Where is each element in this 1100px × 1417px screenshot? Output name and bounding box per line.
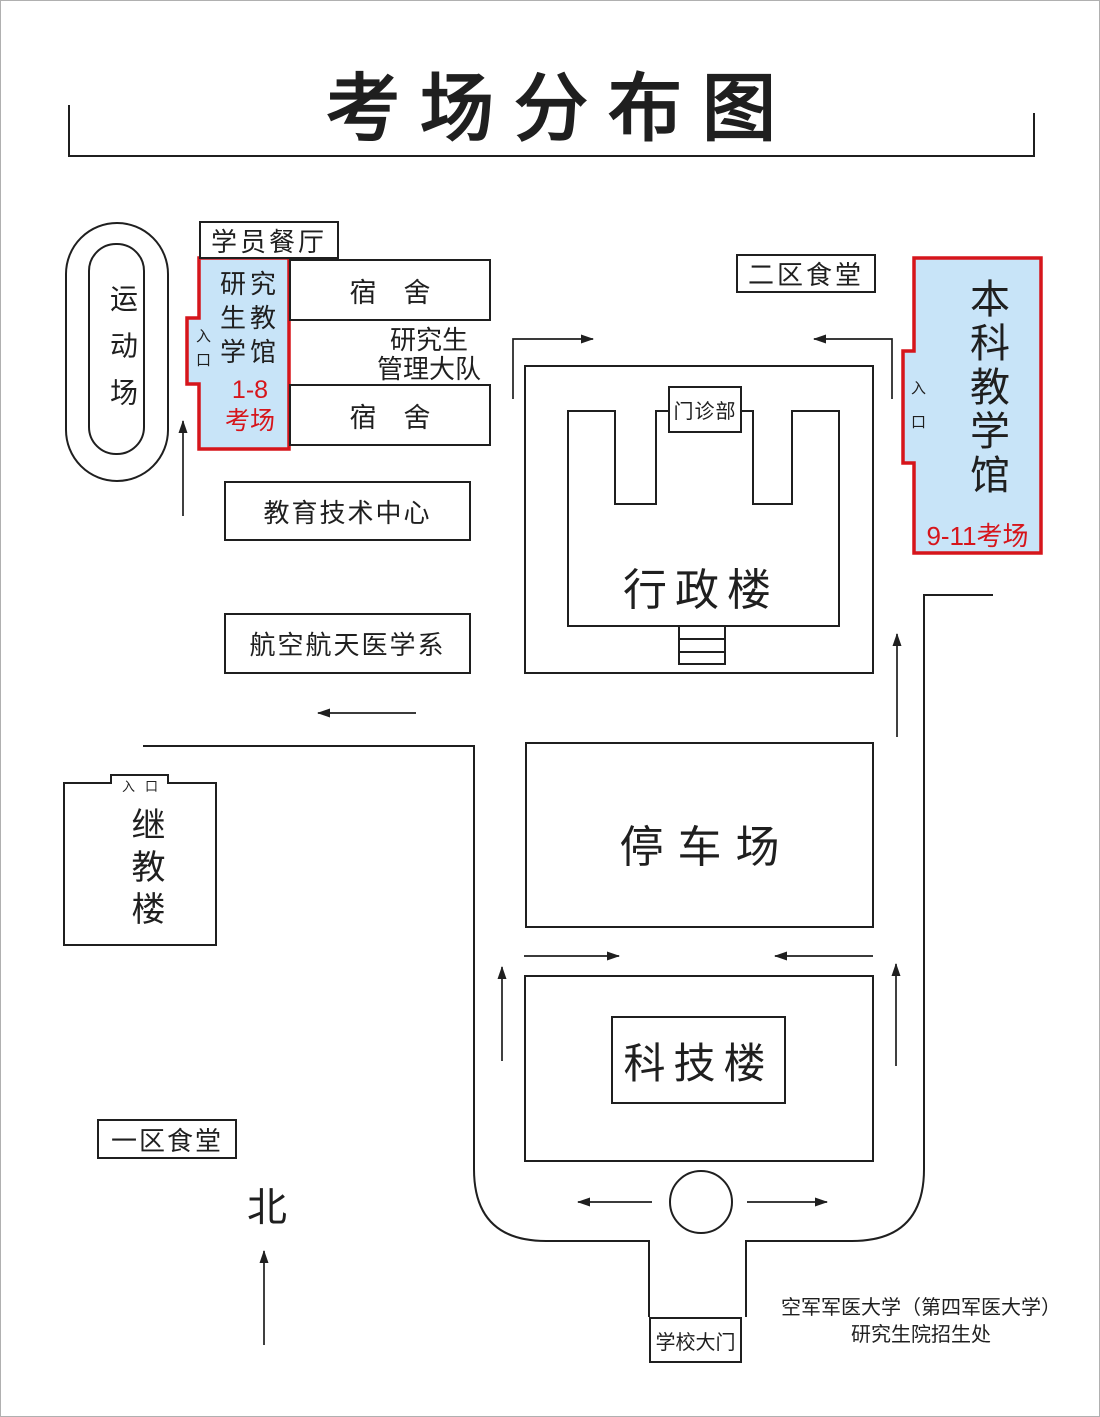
undergrad-entrance-label: 入口 [907, 380, 928, 448]
school-gate-label: 学校大门 [656, 1326, 736, 1355]
building-dorm-upper: 宿 舍 [289, 259, 491, 321]
grad-teaching-hall-label: 研究生教学馆 [212, 267, 288, 369]
undergrad-exam-rooms: 9-11考场 [914, 516, 1041, 553]
map-linework [1, 1, 1100, 1417]
footer-university-name: 空军军医大学（第四军医大学） [766, 1295, 1076, 1322]
grad-management-line2: 管理大队 [329, 355, 529, 384]
dorm-upper-label: 宿 舍 [350, 271, 431, 310]
grad-management-line1: 研究生 [329, 326, 529, 355]
grad-management-label: 研究生 管理大队 [329, 326, 529, 384]
footer-organization: 空军军医大学（第四军医大学） 研究生院招生处 [766, 1295, 1076, 1349]
page-title: 考场分布图 [1, 49, 1100, 156]
building-district2-canteen: 二区食堂 [736, 254, 876, 293]
north-label: 北 [243, 1175, 291, 1233]
building-aerospace-medicine: 航空航天医学系 [224, 613, 471, 674]
student-canteen-label: 学员餐厅 [211, 222, 327, 259]
scitech-label: 科技楼 [623, 1030, 773, 1091]
building-student-canteen: 学员餐厅 [199, 221, 339, 259]
roundabout-circle [670, 1171, 732, 1233]
continuing-edu-entrance-label: 入口 [111, 776, 169, 795]
parking-lot-label: 停车场 [526, 811, 873, 875]
clinic-label: 门诊部 [674, 395, 737, 424]
exam-map-page: 考场分布图 运动场 学员餐厅 研究生教学馆 1-8 考场 入口 宿 舍 研究生 … [0, 0, 1100, 1417]
footer-office-name: 研究生院招生处 [766, 1322, 1076, 1349]
edu-tech-center-label: 教育技术中心 [263, 493, 431, 530]
arrow-left-from-undergrad-entrance [814, 339, 892, 399]
dorm-lower-label: 宿 舍 [350, 396, 431, 435]
aerospace-medicine-label: 航空航天医学系 [249, 625, 445, 662]
building-edu-tech-center: 教育技术中心 [224, 481, 471, 541]
admin-building-label: 行政楼 [596, 554, 806, 618]
undergrad-teaching-hall-label: 本科教学馆 [957, 278, 1015, 498]
building-dorm-lower: 宿 舍 [289, 384, 491, 446]
admin-building-steps [679, 626, 725, 664]
sports-field-label: 运动场 [102, 284, 142, 425]
building-district1-canteen: 一区食堂 [97, 1119, 237, 1159]
district2-canteen-label: 二区食堂 [748, 255, 864, 292]
grad-teaching-hall-entrance-label: 入口 [192, 328, 213, 376]
continuing-edu-label: 继教楼 [121, 807, 170, 933]
building-school-gate: 学校大门 [649, 1317, 742, 1363]
building-clinic: 门诊部 [668, 386, 742, 433]
grad-exam-suffix: 考场 [212, 406, 288, 437]
grad-exam-range: 1-8 [212, 375, 288, 406]
grad-teaching-hall-exam-rooms: 1-8 考场 [212, 375, 288, 437]
building-scitech: 科技楼 [611, 1016, 786, 1104]
district1-canteen-label: 一区食堂 [111, 1121, 223, 1158]
